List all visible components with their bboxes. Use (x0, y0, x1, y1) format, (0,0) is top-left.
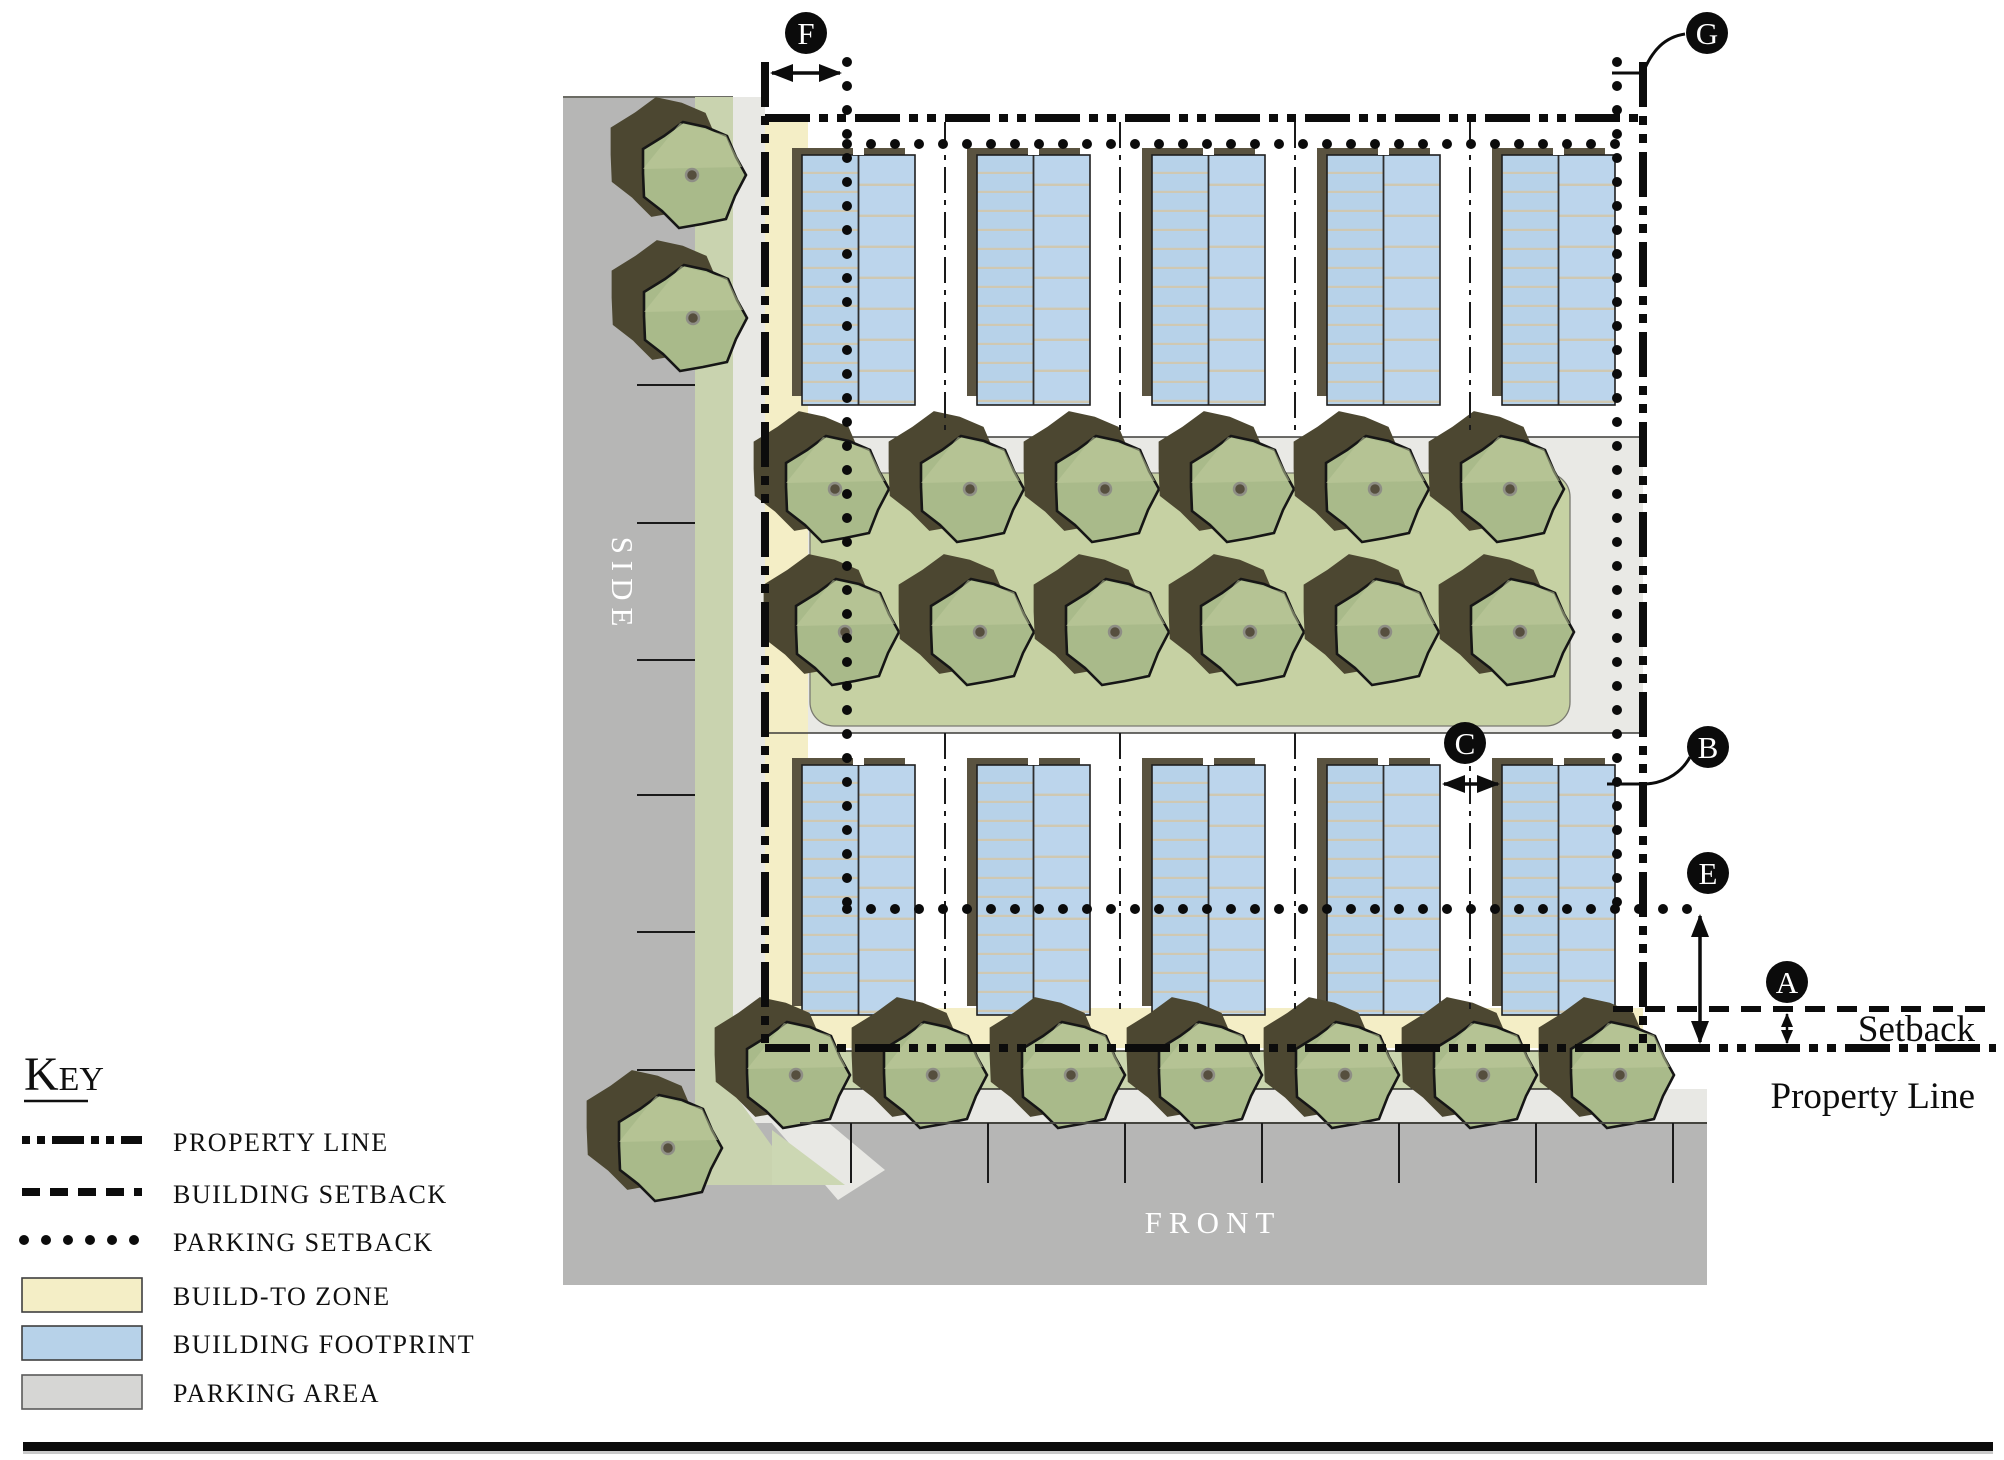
legend-item-building-setback: BUILDING SETBACK (22, 1180, 448, 1209)
building-footprint (1492, 148, 1615, 405)
property-line-annotation: Property Line (1771, 1076, 1975, 1117)
building-footprint-swatch (22, 1326, 142, 1360)
bottom-rule-bar (23, 1442, 1993, 1451)
marker-e: E (1687, 852, 1729, 894)
parking-area-swatch (22, 1375, 142, 1409)
marker-g: G (1686, 12, 1728, 54)
building-footprint (1492, 758, 1615, 1015)
marker-g-letter: G (1696, 16, 1718, 51)
marker-a-letter: A (1776, 965, 1799, 1000)
leader-line-g (1612, 34, 1685, 73)
front-street-label: FRONT (1145, 1205, 1282, 1240)
site-plan: F G C B E A SIDE FRONT Setback Property … (0, 0, 2004, 1460)
legend-item-label: PROPERTY LINE (173, 1128, 389, 1157)
marker-c-letter: C (1455, 726, 1476, 761)
building-footprint (967, 148, 1090, 405)
marker-e-letter: E (1699, 856, 1718, 891)
legend-item-label: PARKING AREA (173, 1379, 380, 1408)
legend-item-parking-area: PARKING AREA (22, 1375, 380, 1409)
legend-item-building-footprint: BUILDING FOOTPRINT (22, 1326, 475, 1360)
bottom-rule-shadow (23, 1451, 1993, 1454)
building-footprint (792, 148, 915, 405)
side-planting-strip (695, 97, 733, 1092)
building-footprint (1142, 148, 1265, 405)
side-street-label: SIDE (605, 537, 640, 634)
side-sidewalk (733, 97, 765, 1092)
marker-c: C (1444, 722, 1486, 764)
legend-title: Key (24, 1048, 104, 1101)
marker-f: F (785, 12, 827, 54)
legend: Key PROPERTY LINE BUILDING SETBACK PARKI… (22, 1048, 475, 1409)
building-footprint (967, 758, 1090, 1015)
legend-item-label: PARKING SETBACK (173, 1228, 434, 1257)
legend-item-label: BUILD-TO ZONE (173, 1282, 391, 1311)
marker-a: A (1766, 961, 1808, 1003)
building-footprint (1142, 758, 1265, 1015)
building-footprint (1317, 148, 1440, 405)
bottom-rule (23, 1442, 1993, 1454)
build-to-zone-swatch (22, 1278, 142, 1312)
marker-b-letter: B (1698, 730, 1719, 765)
legend-item-property-line: PROPERTY LINE (22, 1128, 389, 1157)
setback-annotation: Setback (1858, 1009, 1976, 1050)
legend-item-label: BUILDING FOOTPRINT (173, 1330, 475, 1359)
legend-item-build-to-zone: BUILD-TO ZONE (22, 1278, 391, 1312)
marker-f-letter: F (797, 16, 814, 51)
legend-item-parking-setback: PARKING SETBACK (24, 1228, 434, 1257)
legend-item-label: BUILDING SETBACK (173, 1180, 448, 1209)
building-footprint (1317, 758, 1440, 1015)
building-footprint (792, 758, 915, 1015)
marker-b: B (1687, 726, 1729, 768)
